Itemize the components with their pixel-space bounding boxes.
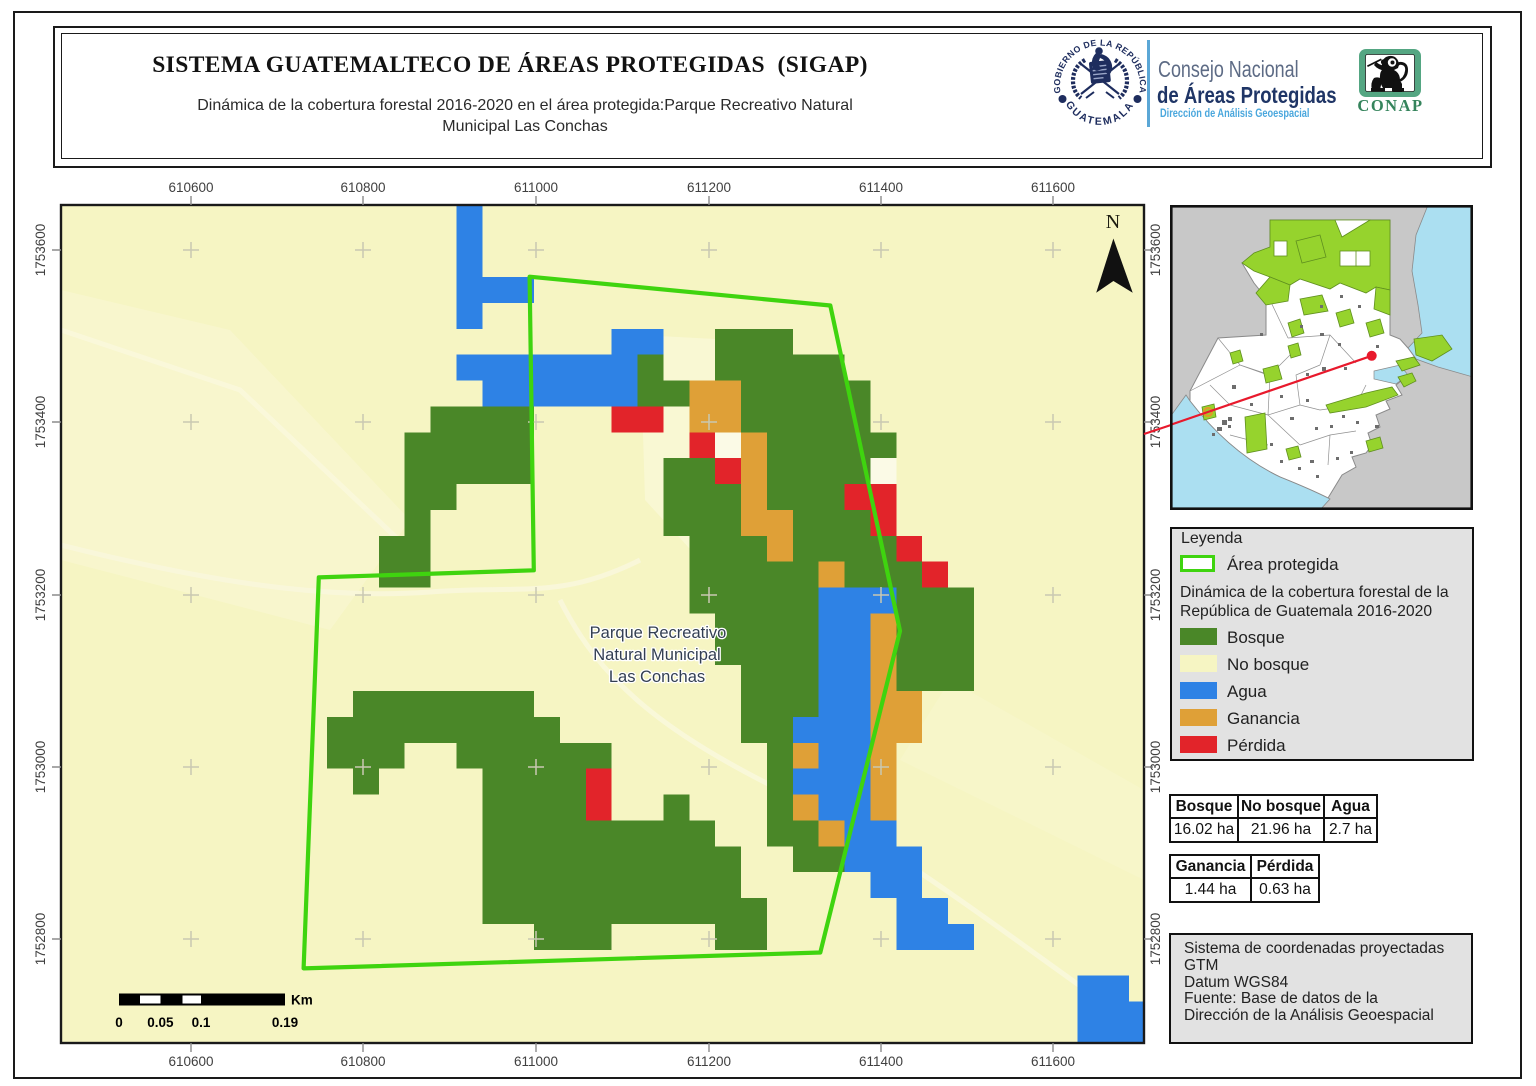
svg-text:610600: 610600 [168,180,213,195]
svg-text:611000: 611000 [514,1054,558,1069]
svg-text:Km: Km [291,993,313,1008]
svg-text:610800: 610800 [340,180,385,195]
svg-text:Las Conchas: Las Conchas [609,668,705,686]
svg-text:611200: 611200 [687,180,731,195]
svg-text:611000: 611000 [514,180,558,195]
svg-text:1753600: 1753600 [33,224,48,277]
svg-text:611600: 611600 [1031,180,1075,195]
svg-text:611200: 611200 [687,1054,731,1069]
svg-text:1752800: 1752800 [1148,913,1163,966]
svg-text:611400: 611400 [859,180,903,195]
svg-text:1753400: 1753400 [1148,396,1163,449]
svg-text:610800: 610800 [340,1054,385,1069]
svg-text:1752800: 1752800 [33,913,48,966]
svg-text:0: 0 [115,1015,123,1030]
svg-text:1753600: 1753600 [1148,224,1163,277]
svg-text:0.1: 0.1 [192,1015,211,1030]
svg-text:Natural Municipal: Natural Municipal [593,646,720,664]
svg-text:1753400: 1753400 [33,396,48,449]
svg-text:0.19: 0.19 [272,1015,298,1030]
svg-text:Parque Recreativo: Parque Recreativo [590,624,727,642]
svg-text:610600: 610600 [168,1054,213,1069]
svg-text:1753000: 1753000 [33,741,48,794]
svg-text:1753200: 1753200 [1148,569,1163,622]
svg-text:1753000: 1753000 [1148,741,1163,794]
svg-text:611600: 611600 [1031,1054,1075,1069]
svg-text:0.05: 0.05 [147,1015,174,1030]
svg-text:1753200: 1753200 [33,569,48,622]
svg-text:N: N [1106,211,1120,233]
svg-text:611400: 611400 [859,1054,903,1069]
